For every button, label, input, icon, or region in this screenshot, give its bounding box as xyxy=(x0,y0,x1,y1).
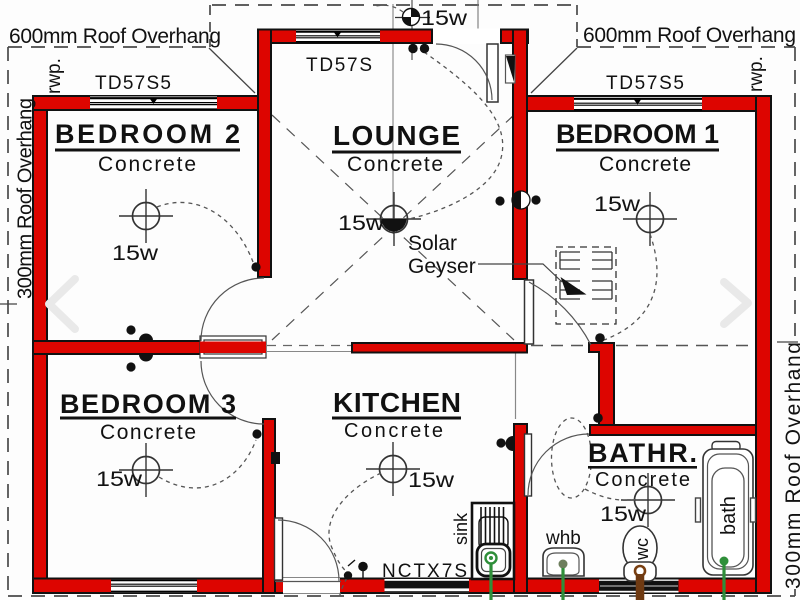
svg-text:15w: 15w xyxy=(421,7,468,30)
svg-text:Concrete: Concrete xyxy=(599,153,691,176)
svg-text:Geyser: Geyser xyxy=(408,255,476,278)
svg-text:300mm Roof Overhang: 300mm Roof Overhang xyxy=(15,98,37,299)
svg-text:KITCHEN: KITCHEN xyxy=(333,387,461,418)
svg-text:TD57S5: TD57S5 xyxy=(95,73,171,94)
svg-text:15w: 15w xyxy=(594,193,641,216)
svg-text:BEDROOM 3: BEDROOM 3 xyxy=(60,389,236,419)
svg-text:15w: 15w xyxy=(96,468,143,491)
svg-text:15w: 15w xyxy=(338,212,385,235)
svg-text:15w: 15w xyxy=(600,503,647,526)
svg-text:BATHR.: BATHR. xyxy=(588,438,697,468)
svg-text:rwp.: rwp. xyxy=(746,56,767,92)
svg-text:TD57S: TD57S xyxy=(306,55,372,76)
svg-text:600mm Roof Overhang: 600mm Roof Overhang xyxy=(9,25,221,48)
svg-text:15w: 15w xyxy=(408,469,455,492)
svg-text:bath: bath xyxy=(718,496,740,535)
svg-text:NCTX7S: NCTX7S xyxy=(382,561,467,582)
svg-text:Solar: Solar xyxy=(408,232,457,255)
svg-text:rwp.: rwp. xyxy=(44,58,65,94)
svg-text:Concrete: Concrete xyxy=(595,469,690,491)
svg-text:LOUNGE: LOUNGE xyxy=(333,120,460,151)
svg-text:Concrete: Concrete xyxy=(347,153,443,176)
svg-text:300mm Roof Overhang: 300mm Roof Overhang xyxy=(782,342,800,589)
svg-text:15w: 15w xyxy=(112,242,159,265)
svg-text:wc: wc xyxy=(632,538,652,561)
svg-text:whb: whb xyxy=(545,528,581,549)
svg-text:sink: sink xyxy=(451,512,471,545)
svg-text:BEDROOM 1: BEDROOM 1 xyxy=(556,119,719,149)
svg-text:Concrete: Concrete xyxy=(98,153,196,176)
svg-text:600mm Roof Overhang: 600mm Roof Overhang xyxy=(583,24,796,47)
svg-text:Concrete: Concrete xyxy=(100,421,196,444)
